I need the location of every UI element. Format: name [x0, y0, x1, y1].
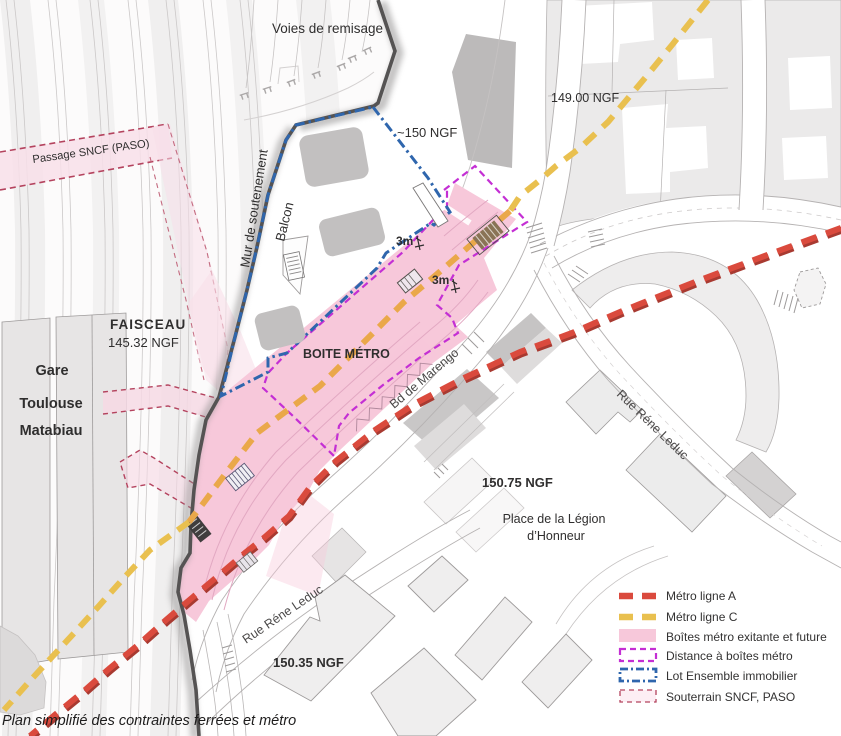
- svg-text:FAISCEAU: FAISCEAU: [110, 317, 186, 332]
- svg-text:150.75 NGF: 150.75 NGF: [482, 475, 553, 490]
- svg-text:BOITE MÉTRO: BOITE MÉTRO: [303, 346, 390, 361]
- svg-text:3m: 3m: [396, 234, 413, 248]
- svg-text:145.32 NGF: 145.32 NGF: [108, 335, 179, 350]
- svg-text:Lot Ensemble immobilier: Lot Ensemble immobilier: [666, 669, 797, 683]
- svg-text:Plan simplifié des contraintes: Plan simplifié des contraintes ferrées e…: [2, 713, 296, 729]
- svg-text:150.35 NGF: 150.35 NGF: [273, 655, 344, 670]
- svg-text:Gare: Gare: [35, 363, 68, 379]
- svg-text:3m: 3m: [432, 273, 449, 287]
- svg-text:Place de la Légion: Place de la Légion: [503, 512, 606, 526]
- svg-text:Boîtes métro exitante et futur: Boîtes métro exitante et future: [666, 630, 827, 644]
- svg-text:Matabiau: Matabiau: [20, 423, 83, 439]
- svg-text:Voies de remisage: Voies de remisage: [272, 21, 383, 36]
- svg-text:~150 NGF: ~150 NGF: [397, 125, 457, 140]
- svg-text:Métro ligne A: Métro ligne A: [666, 589, 736, 603]
- svg-text:Toulouse: Toulouse: [19, 396, 82, 412]
- svg-text:Souterrain SNCF, PASO: Souterrain SNCF, PASO: [666, 690, 795, 704]
- svg-text:149.00 NGF: 149.00 NGF: [551, 91, 619, 105]
- svg-text:Distance à boîtes métro: Distance à boîtes métro: [666, 649, 793, 663]
- svg-text:d’Honneur: d’Honneur: [527, 529, 585, 543]
- svg-text:Métro ligne C: Métro ligne C: [666, 610, 738, 624]
